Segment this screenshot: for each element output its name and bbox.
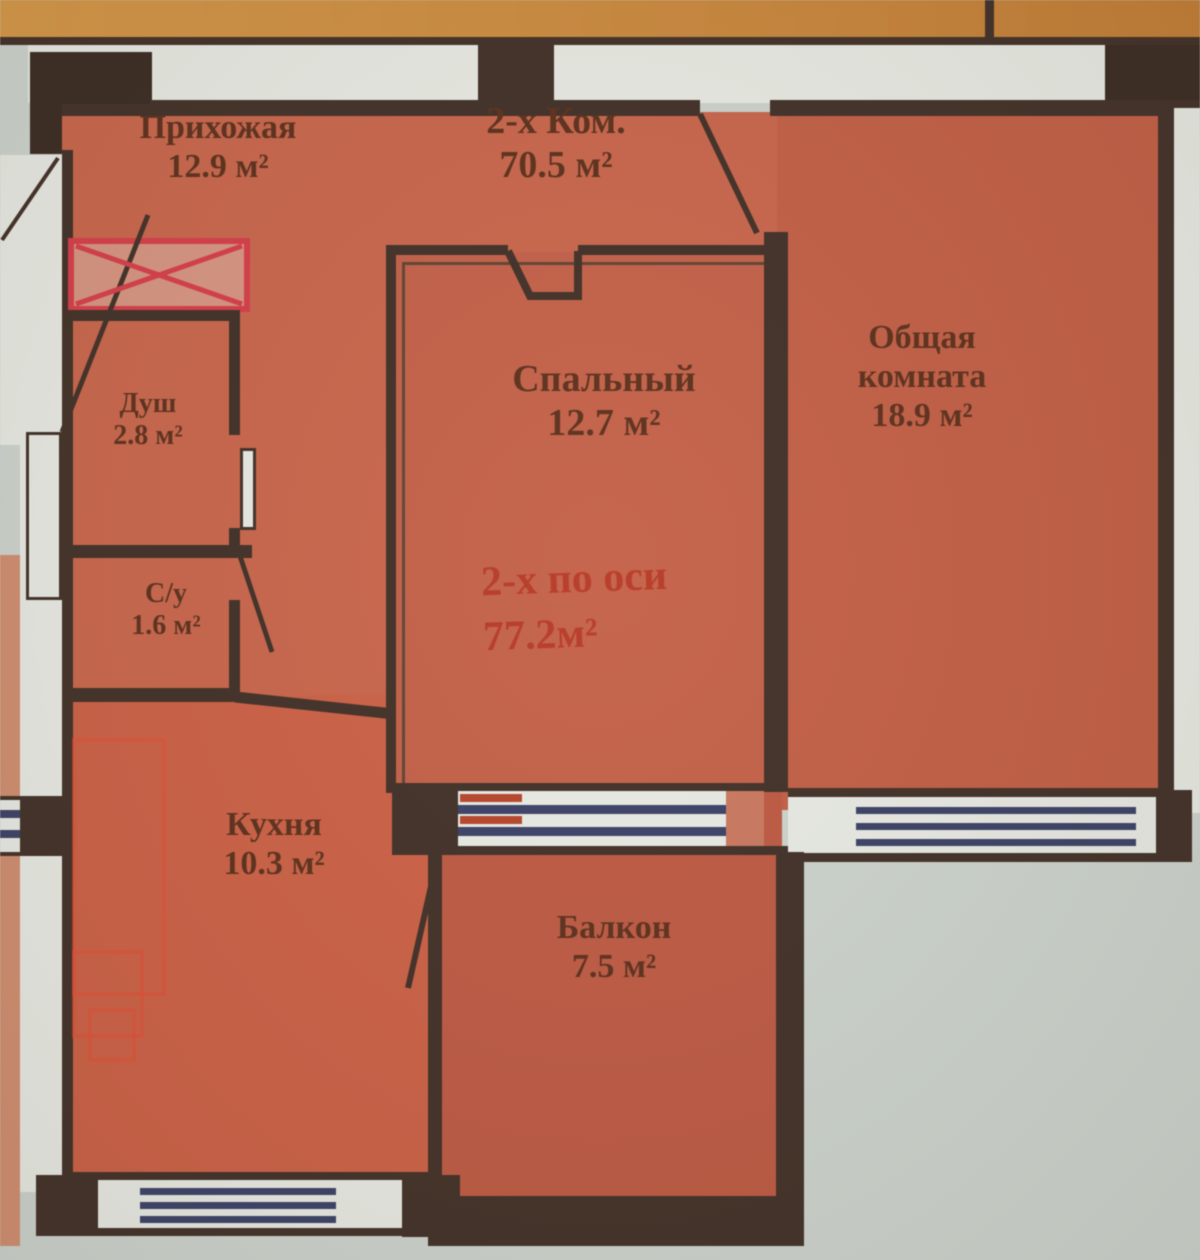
living-right-wall <box>1158 108 1174 810</box>
kitchen-band-white-right <box>336 1180 402 1230</box>
mid-band-bottom-border <box>392 846 792 855</box>
room-label-bedroom: Спальный 12.7 м² <box>512 358 696 445</box>
apartment-title-label: 2-х Ком. 70.5 м² <box>486 100 625 187</box>
stamp-line2: 77.2м² <box>482 603 670 664</box>
shower-top-wall <box>62 310 240 321</box>
living-name-line2: комната <box>858 357 986 396</box>
living-name-line1: Общая <box>858 318 986 357</box>
stairwell-area <box>0 155 62 445</box>
shower-right-wall-upper <box>229 310 240 435</box>
kitchen-bottom-thin-wall <box>62 1172 442 1180</box>
adjacent-unit-left-band <box>0 555 20 1247</box>
right-outside-strip <box>1174 108 1200 813</box>
kitchen-stove-outline <box>88 1008 136 1062</box>
top-wall-right-segment <box>770 100 1200 116</box>
living-area: 18.9 м² <box>858 396 986 435</box>
bedroom-name: Спальный <box>512 358 696 402</box>
balcony-bottom-wall <box>428 1196 804 1248</box>
wardrobe-hatched-box <box>68 238 250 312</box>
balcony-right-wall <box>776 852 804 1214</box>
bedroom-top-wall-right <box>578 245 778 255</box>
apartment-title-area: 70.5 м² <box>486 144 625 188</box>
floor-plan-photo: Прихожая 12.9 м² 2-х Ком. 70.5 м² Душ 2.… <box>0 0 1200 1260</box>
living-band-top-border <box>788 788 1170 797</box>
shower-name: Душ <box>113 388 182 420</box>
shower-area: 2.8 м² <box>113 420 182 452</box>
kitchen-area: 10.3 м² <box>223 844 324 883</box>
living-band-corner-block <box>1156 790 1192 862</box>
hallway-area: 12.9 м² <box>140 147 297 186</box>
bottom-background <box>0 1246 1200 1260</box>
mid-band-window <box>458 791 726 849</box>
wc-right-wall <box>229 600 240 695</box>
kitchen-band-white-left <box>98 1180 140 1230</box>
bedroom-left-wall <box>386 245 396 793</box>
neighbor-window-stub <box>0 800 20 852</box>
wc-bottom-wall <box>62 688 240 702</box>
kitchen-window <box>140 1180 336 1230</box>
balcony-left-wall <box>428 852 442 1214</box>
room-label-hallway: Прихожая 12.9 м² <box>140 108 297 186</box>
bedroom-inner-outline <box>402 262 770 786</box>
shower-door-leaf <box>240 448 256 530</box>
shower-wc-divider-wall <box>62 545 252 558</box>
room-label-living: Общая комната 18.9 м² <box>858 318 986 435</box>
adjacent-apartment-top-band <box>0 0 1200 40</box>
mid-band-left-block <box>392 788 458 854</box>
top-corridor-band <box>28 45 1200 103</box>
living-band-bottom-border <box>788 853 1178 862</box>
axis-area-stamp: 2-х по оси 77.2м² <box>480 549 670 665</box>
kitchen-name: Кухня <box>223 805 324 844</box>
kitchen-band-bottom-border <box>36 1228 460 1236</box>
mid-band-red-block <box>726 791 764 849</box>
wc-name: С/у <box>131 578 200 610</box>
bedroom-top-wall-left <box>386 245 508 255</box>
entrance-door-leaf <box>26 432 62 600</box>
wc-area: 1.6 м² <box>131 610 200 642</box>
balcony-name: Балкон <box>557 908 672 947</box>
room-label-wc: С/у 1.6 м² <box>131 578 200 642</box>
balcony-area: 7.5 м² <box>557 947 672 986</box>
top-band-divider <box>985 0 994 40</box>
room-label-shower: Душ 2.8 м² <box>113 388 182 452</box>
hallway-name: Прихожая <box>140 108 297 147</box>
apartment-title-name: 2-х Ком. <box>486 100 625 144</box>
room-fill-living <box>777 108 1169 810</box>
kitchen-corner-block-left <box>36 1175 98 1235</box>
living-window <box>856 797 1136 853</box>
room-label-balcony: Балкон 7.5 м² <box>557 908 672 986</box>
top-band-underline <box>0 37 1200 45</box>
living-band-white-left <box>788 797 856 853</box>
room-label-kitchen: Кухня 10.3 м² <box>223 805 324 883</box>
bedroom-area: 12.7 м² <box>512 402 696 446</box>
stamp-line1: 2-х по оси <box>480 549 668 610</box>
bedroom-living-shared-wall <box>764 232 788 792</box>
